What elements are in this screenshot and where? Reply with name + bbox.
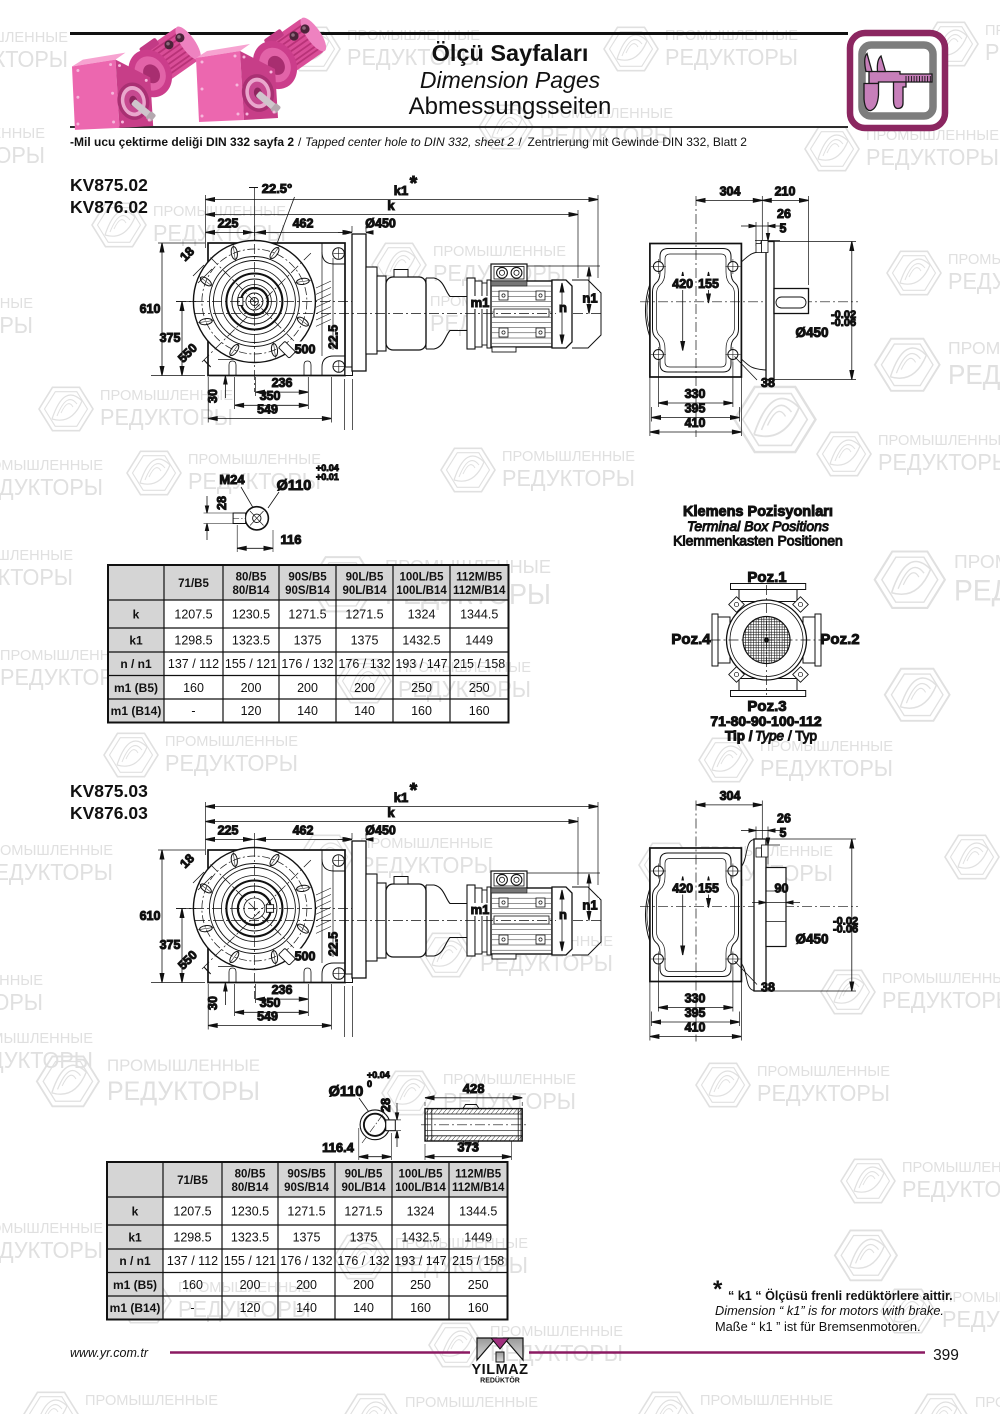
svg-text:28: 28 [215, 496, 229, 510]
svg-text:120: 120 [241, 704, 262, 718]
svg-text:1323.5: 1323.5 [232, 634, 270, 648]
svg-text:ПРОМЫШЛЕННЫЕ: ПРОМЫШЛЕННЫЕ [0, 1221, 103, 1237]
svg-text:1271.5: 1271.5 [345, 608, 383, 622]
svg-text:610: 610 [140, 302, 161, 316]
svg-text:1449: 1449 [464, 1231, 492, 1245]
svg-text:236: 236 [272, 376, 293, 390]
svg-text:1432.5: 1432.5 [402, 634, 440, 648]
svg-text:38: 38 [761, 981, 775, 995]
svg-text:1298.5: 1298.5 [174, 634, 212, 648]
svg-text:Dimension “ k1” is for motors: Dimension “ k1” is for motors with brake… [715, 1303, 944, 1318]
svg-text:n / n1: n / n1 [120, 657, 152, 671]
svg-text:1271.5: 1271.5 [288, 608, 326, 622]
svg-text:176 / 132: 176 / 132 [280, 1254, 332, 1268]
svg-text:1375: 1375 [293, 1231, 321, 1245]
svg-text:REDÜKTÖR: REDÜKTÖR [480, 1376, 520, 1385]
svg-text:1324: 1324 [408, 608, 436, 622]
svg-text:ПРОМЫШЛЕННЫЕ: ПРОМЫШЛЕННЫЕ [0, 458, 103, 474]
svg-text:176 / 132: 176 / 132 [337, 1254, 389, 1268]
svg-text:420: 420 [672, 277, 693, 291]
svg-text:80/B5: 80/B5 [235, 1169, 266, 1181]
svg-text:160: 160 [469, 704, 490, 718]
svg-text:n1: n1 [582, 898, 597, 913]
svg-text:www.yr.com.tr: www.yr.com.tr [70, 1346, 149, 1360]
svg-text:M24: M24 [219, 472, 245, 487]
svg-text:m1 (B5): m1 (B5) [113, 1278, 157, 1292]
svg-text:ПРОМЫШЛЕННЫЕ: ПРОМЫШЛЕННЫЕ [954, 551, 1000, 572]
svg-text:215 / 158: 215 / 158 [453, 657, 505, 671]
svg-text:Zentrierung mit Gewinde DIN 33: Zentrierung mit Gewinde DIN 332, Blatt 2 [528, 135, 748, 149]
svg-text:РЕДУКТОРЫ: РЕДУКТОРЫ [757, 1080, 890, 1106]
svg-text:80/B14: 80/B14 [232, 585, 270, 597]
svg-text:РЕДУКТОРЫ: РЕДУКТОРЫ [985, 39, 1000, 65]
svg-text:112M/B14: 112M/B14 [452, 1182, 505, 1194]
svg-text:ПРОМЫШЛЕННЫЕ: ПРОМЫШЛЕННЫЕ [878, 433, 1000, 449]
svg-text:ПРОМЫШЛЕННЫЕ: ПРОМЫШЛЕННЫЕ [165, 734, 298, 750]
svg-text:38: 38 [761, 376, 775, 390]
svg-text:Type: Type [755, 729, 784, 744]
svg-text:225: 225 [218, 216, 239, 230]
svg-text:1271.5: 1271.5 [287, 1205, 325, 1219]
svg-text:m1: m1 [471, 902, 490, 917]
svg-text:ПРОМЫШЛЕННЫЕ: ПРОМЫШЛЕННЫЕ [948, 252, 1000, 268]
svg-text:РЕДУКТОРЫ: РЕДУКТОРЫ [948, 268, 1000, 294]
svg-text:200: 200 [241, 681, 262, 695]
svg-text:*: * [713, 1276, 723, 1303]
svg-text:ПРОМЫШЛЕННЫЕ: ПРОМЫШЛЕННЫЕ [700, 1393, 833, 1409]
svg-text:KV875.02: KV875.02 [70, 175, 148, 195]
svg-text:ПРОМЫШЛЕННЫЕ: ПРОМЫШЛЕННЫЕ [0, 973, 43, 989]
svg-text:-: - [190, 1301, 194, 1315]
svg-text:k: k [132, 1205, 139, 1219]
svg-text:22.5: 22.5 [327, 325, 341, 349]
svg-text:26: 26 [777, 207, 791, 221]
svg-text:137 / 112: 137 / 112 [168, 657, 219, 671]
svg-text:395: 395 [685, 1006, 706, 1020]
svg-text:155: 155 [698, 882, 719, 896]
svg-text:462: 462 [293, 216, 314, 230]
svg-text:100L/B5: 100L/B5 [398, 1169, 443, 1181]
svg-text:ПРОМЫШЛЕННЫЕ: ПРОМЫШЛЕННЫЕ [948, 338, 1000, 358]
svg-text:РЕДУКТОРЫ: РЕДУКТОРЫ [502, 465, 635, 491]
svg-text:KV876.03: KV876.03 [70, 803, 148, 823]
svg-text:200: 200 [240, 1278, 261, 1292]
svg-text:22.5°: 22.5° [262, 181, 293, 196]
svg-text:k: k [387, 805, 395, 820]
svg-text:ПРОМЫШЛЕННЫЕ: ПРОМЫШЛЕННЫЕ [0, 548, 73, 564]
svg-text:РЕДУКТОРЫ: РЕДУКТОРЫ [665, 44, 798, 70]
svg-text:1449: 1449 [465, 634, 493, 648]
svg-text:160: 160 [183, 681, 204, 695]
svg-text:*: * [410, 781, 418, 802]
svg-text:n1: n1 [582, 291, 597, 306]
svg-text:1230.5: 1230.5 [231, 1205, 269, 1219]
svg-text:РЕДУКТОРЫ: РЕДУКТОРЫ [878, 449, 1000, 475]
svg-text:ПРОМЫШЛЕННЫЕ: ПРОМЫШЛЕННЫЕ [985, 23, 1000, 39]
svg-text:k1: k1 [394, 183, 408, 198]
svg-text:200: 200 [297, 681, 318, 695]
svg-text:200: 200 [353, 1278, 374, 1292]
svg-text:РЕДУКТОРЫ: РЕДУКТОРЫ [165, 750, 298, 776]
svg-text:350: 350 [260, 996, 281, 1010]
svg-text:ПРОМЫШЛЕННЫЕ: ПРОМЫШЛЕННЫЕ [757, 1064, 890, 1080]
svg-text:ПРОМЫШЛЕННЫЕ: ПРОМЫШЛЕННЫЕ [0, 30, 68, 46]
svg-text:22.5: 22.5 [327, 932, 341, 956]
svg-text:71/B5: 71/B5 [178, 578, 209, 590]
svg-text:1230.5: 1230.5 [232, 608, 270, 622]
svg-text:1324: 1324 [407, 1205, 435, 1219]
svg-text:330: 330 [685, 387, 706, 401]
svg-text:375: 375 [160, 938, 181, 952]
svg-text:236: 236 [272, 983, 293, 997]
svg-text:m1 (B5): m1 (B5) [114, 681, 158, 695]
svg-text:k1: k1 [128, 1231, 142, 1245]
svg-text:РЕДУКТОРЫ: РЕДУКТОРЫ [948, 359, 1000, 390]
svg-text:193 / 147: 193 / 147 [395, 657, 447, 671]
svg-text:26: 26 [777, 812, 791, 826]
svg-text:РЕДУКТОРЫ: РЕДУКТОРЫ [0, 1237, 103, 1263]
svg-text:РЕДУКТОРЫ: РЕДУКТОРЫ [0, 142, 45, 168]
svg-text:373: 373 [457, 1140, 479, 1155]
svg-text:225: 225 [218, 823, 239, 837]
svg-text:549: 549 [257, 1010, 278, 1024]
svg-text:350: 350 [260, 389, 281, 403]
svg-text:100L/B14: 100L/B14 [395, 1182, 446, 1194]
svg-text:Ölçü Sayfaları: Ölçü Sayfaları [432, 40, 589, 66]
svg-text:5: 5 [780, 826, 787, 840]
svg-text:РЕДУКТОРЫ: РЕДУКТОРЫ [360, 852, 493, 878]
svg-text:80/B5: 80/B5 [236, 572, 267, 584]
svg-text:РЕДУКТОРЫ: РЕДУКТОРЫ [0, 1047, 93, 1073]
svg-text:ПРОМЫШЛЕННЫЕ: ПРОМЫШЛЕННЫЕ [85, 1393, 218, 1409]
svg-text:410: 410 [685, 1021, 706, 1035]
svg-text:160: 160 [182, 1278, 203, 1292]
svg-text:210: 210 [775, 185, 796, 199]
svg-text:РЕДУКТОРЫ: РЕДУКТОРЫ [85, 1409, 218, 1414]
svg-text:375: 375 [160, 331, 181, 345]
svg-text:Poz.4: Poz.4 [671, 631, 711, 648]
svg-text:+0.01: +0.01 [316, 472, 339, 482]
svg-text:Ø110: Ø110 [277, 478, 312, 494]
svg-text:112M/B14: 112M/B14 [453, 585, 506, 597]
svg-text:ПРОМЫШЛЕННЫЕ: ПРОМЫШЛЕННЫЕ [360, 836, 493, 852]
svg-text:399: 399 [933, 1347, 959, 1364]
svg-text:РЕДУКТОРЫ: РЕДУКТОРЫ [0, 989, 43, 1015]
svg-text:1298.5: 1298.5 [173, 1231, 211, 1245]
svg-text:160: 160 [468, 1301, 489, 1315]
svg-text:Maße “ k1 ” ist für Bremsenmot: Maße “ k1 ” ist für Bremsenmotoren. [715, 1319, 921, 1334]
svg-text:-0.06: -0.06 [833, 924, 858, 936]
svg-text:116.4: 116.4 [322, 1140, 355, 1155]
svg-text:250: 250 [469, 681, 490, 695]
svg-text:Ø450: Ø450 [365, 823, 396, 837]
svg-text:*: * [410, 174, 418, 195]
svg-text:1207.5: 1207.5 [174, 608, 212, 622]
svg-text:ПРОМЫШЛЕННЫЕ: ПРОМЫШЛЕННЫЕ [0, 296, 33, 312]
svg-text:РЕДУКТОРЫ: РЕДУКТОРЫ [882, 987, 1000, 1013]
svg-text:90S/B5: 90S/B5 [288, 572, 327, 584]
svg-text:90L/B14: 90L/B14 [341, 1182, 386, 1194]
svg-text:ПРОМЫШЛЕННЫЕ: ПРОМЫШЛЕННЫЕ [188, 452, 321, 468]
svg-text:k1: k1 [394, 790, 408, 805]
svg-text:330: 330 [685, 992, 706, 1006]
svg-text:71-80-90-100-112: 71-80-90-100-112 [710, 713, 822, 729]
svg-text:100L/B14: 100L/B14 [396, 585, 447, 597]
svg-text:ПРОМЫШЛЕННЫЕ: ПРОМЫШЛЕННЫЕ [0, 843, 113, 859]
svg-text:ПРОМЫШЛЕННЫЕ: ПРОМЫШЛЕННЫЕ [902, 1160, 1000, 1176]
svg-text:140: 140 [297, 704, 318, 718]
svg-text:ПРОМЫШЛЕННЫЕ: ПРОМЫШЛЕННЫЕ [107, 1056, 260, 1075]
svg-text:Ø450: Ø450 [795, 325, 828, 340]
svg-text:k: k [133, 608, 140, 622]
svg-text:395: 395 [685, 402, 706, 416]
svg-text:РЕДУКТОРЫ: РЕДУКТОРЫ [760, 755, 893, 781]
svg-text:Klemmenkasten Positionen: Klemmenkasten Positionen [673, 533, 843, 549]
svg-text:РЕДУКТОРЫ: РЕДУКТОРЫ [866, 144, 999, 170]
svg-text:Dimension Pages: Dimension Pages [420, 67, 601, 93]
svg-text:ПРОМЫШЛЕННЫЕ: ПРОМЫШЛЕННЫЕ [502, 449, 635, 465]
svg-text:155: 155 [698, 277, 719, 291]
svg-text:410: 410 [685, 416, 706, 430]
svg-text:Abmessungsseiten: Abmessungsseiten [409, 93, 612, 120]
svg-text:ПРОМЫШЛЕННЫЕ: ПРОМЫШЛЕННЫЕ [0, 126, 45, 142]
svg-text:28: 28 [379, 1098, 393, 1112]
svg-text:304: 304 [720, 185, 741, 199]
svg-text:РЕДУКТОРЫ: РЕДУКТОРЫ [902, 1176, 1000, 1202]
svg-text:-: - [191, 704, 195, 718]
svg-text:1207.5: 1207.5 [173, 1205, 211, 1219]
svg-text:250: 250 [411, 681, 432, 695]
svg-text:Tip /: Tip / [725, 729, 753, 744]
svg-text:ПРОМЫШЛЕННЫЕ: ПРОМЫШЛЕННЫЕ [0, 1031, 93, 1047]
svg-text:ПРОМЫШЛЕННЫЕ: ПРОМЫШЛЕННЫЕ [975, 1395, 1000, 1411]
svg-text:KV875.03: KV875.03 [70, 781, 148, 801]
svg-text:112M/B5: 112M/B5 [456, 572, 503, 584]
svg-text:KV876.02: KV876.02 [70, 197, 148, 217]
svg-text:0: 0 [367, 1079, 372, 1089]
svg-text:120: 120 [240, 1301, 261, 1315]
svg-text:ПРОМЫШЛЕННЫЕ: ПРОМЫШЛЕННЫЕ [665, 28, 798, 44]
svg-text:215 / 158: 215 / 158 [452, 1254, 504, 1268]
svg-text:РЕДУКТОРЫ: РЕДУКТОРЫ [954, 575, 1000, 608]
svg-text:1344.5: 1344.5 [459, 1205, 497, 1219]
svg-text:n: n [559, 300, 567, 315]
svg-text:n / n1: n / n1 [119, 1254, 151, 1268]
svg-text:155 / 121: 155 / 121 [224, 1254, 276, 1268]
svg-text:k: k [387, 198, 395, 213]
svg-text:ПРОМЫШЛЕННЫЕ: ПРОМЫШЛЕННЫЕ [433, 244, 566, 260]
svg-text:90S/B14: 90S/B14 [284, 1182, 329, 1194]
svg-text:100L/B5: 100L/B5 [399, 572, 444, 584]
svg-text:90L/B5: 90L/B5 [346, 572, 384, 584]
svg-text:Ø450: Ø450 [365, 216, 396, 230]
svg-text:112M/B5: 112M/B5 [455, 1169, 502, 1181]
svg-text:116: 116 [281, 532, 302, 547]
svg-text:1344.5: 1344.5 [460, 608, 498, 622]
svg-text:90: 90 [775, 882, 789, 896]
svg-text:90S/B14: 90S/B14 [285, 585, 330, 597]
svg-text:Ø450: Ø450 [795, 932, 828, 947]
svg-text:Poz.2: Poz.2 [820, 631, 859, 648]
svg-text:500: 500 [295, 950, 316, 964]
svg-text:176 / 132: 176 / 132 [281, 657, 333, 671]
svg-text:137 / 112: 137 / 112 [167, 1254, 218, 1268]
svg-text:YILMAZ: YILMAZ [472, 1362, 529, 1378]
svg-text:462: 462 [293, 823, 314, 837]
svg-text:РЕДУКТОРЫ: РЕДУКТОРЫ [0, 474, 103, 500]
svg-text:304: 304 [720, 789, 741, 803]
svg-text:428: 428 [463, 1081, 485, 1096]
svg-text:80/B14: 80/B14 [231, 1182, 269, 1194]
svg-text:140: 140 [353, 1301, 374, 1315]
svg-text:200: 200 [296, 1278, 317, 1292]
svg-text:250: 250 [468, 1278, 489, 1292]
svg-text:250: 250 [410, 1278, 431, 1292]
svg-text:РЕДУКТОРЫ: РЕДУКТОРЫ [0, 859, 113, 885]
svg-text:140: 140 [296, 1301, 317, 1315]
svg-text:РЕДУКТОРЫ: РЕДУКТОРЫ [700, 1409, 833, 1414]
svg-text:1375: 1375 [351, 634, 379, 648]
svg-text:160: 160 [411, 704, 432, 718]
svg-text:160: 160 [410, 1301, 431, 1315]
svg-text:m1 (B14): m1 (B14) [111, 704, 162, 718]
svg-text:1271.5: 1271.5 [344, 1205, 382, 1219]
svg-text:k1: k1 [129, 634, 143, 648]
svg-text:/ Typ: / Typ [788, 729, 817, 744]
svg-text:90L/B5: 90L/B5 [345, 1169, 383, 1181]
svg-text:500: 500 [295, 343, 316, 357]
svg-text:420: 420 [672, 882, 693, 896]
svg-text:m1: m1 [471, 295, 490, 310]
svg-text:1375: 1375 [350, 1231, 378, 1245]
svg-text:Ø110: Ø110 [329, 1084, 364, 1100]
svg-text:ПРОМЫШЛЕННЫЕ: ПРОМЫШЛЕННЫЕ [882, 971, 1000, 987]
svg-text:“ k1 “ Ölçüsü frenli redüktörl: “ k1 “ Ölçüsü frenli redüktörlere aittir… [728, 1288, 953, 1303]
svg-text:193 / 147: 193 / 147 [394, 1254, 446, 1268]
svg-text:549: 549 [257, 403, 278, 417]
svg-text:-0.06: -0.06 [831, 317, 856, 329]
svg-text:1432.5: 1432.5 [401, 1231, 439, 1245]
svg-text:m1 (B14): m1 (B14) [110, 1301, 161, 1315]
svg-text:155 / 121: 155 / 121 [225, 657, 277, 671]
svg-text:71/B5: 71/B5 [177, 1175, 208, 1187]
svg-text:РЕДУКТОРЫ: РЕДУКТОРЫ [0, 564, 73, 590]
svg-text:РЕДУКТОРЫ: РЕДУКТОРЫ [942, 1306, 1000, 1332]
svg-text:1375: 1375 [294, 634, 322, 648]
svg-text:ПРОМЫШЛЕННЫЕ: ПРОМЫШЛЕННЫЕ [405, 1395, 538, 1411]
svg-text:200: 200 [354, 681, 375, 695]
svg-text:-Mil ucu çektirme deliği DIN 3: -Mil ucu çektirme deliği DIN 332 sayfa 2 [70, 135, 294, 149]
svg-text:РЕДУКТОРЫ: РЕДУКТОРЫ [107, 1076, 260, 1106]
svg-text:140: 140 [354, 704, 375, 718]
svg-text:176 / 132: 176 / 132 [338, 657, 390, 671]
svg-text:РЕДУКТОРЫ: РЕДУКТОРЫ [0, 312, 33, 338]
svg-text:1323.5: 1323.5 [231, 1231, 269, 1245]
svg-text:5: 5 [780, 222, 787, 236]
svg-text:90L/B14: 90L/B14 [342, 585, 387, 597]
svg-text:90S/B5: 90S/B5 [287, 1169, 326, 1181]
svg-text:Tapped center hole to DIN 332,: Tapped center hole to DIN 332, sheet 2 [305, 135, 514, 149]
svg-text:n: n [559, 907, 567, 922]
svg-text:РЕДУКТОРЫ: РЕДУКТОРЫ [0, 46, 68, 72]
svg-text:610: 610 [140, 909, 161, 923]
